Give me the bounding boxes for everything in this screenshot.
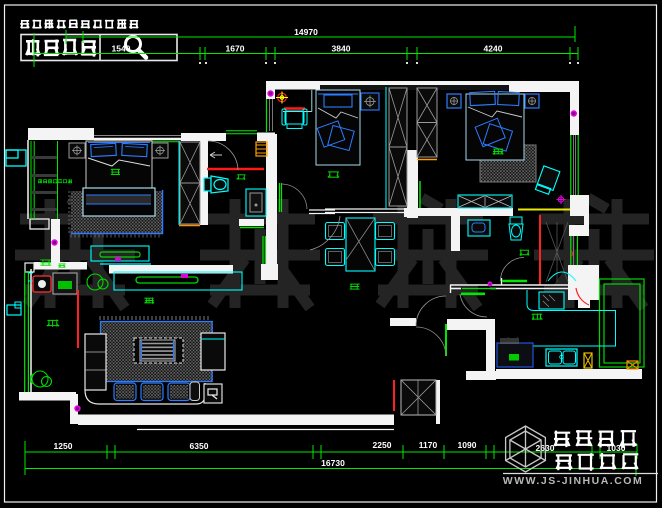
svg-text:3840: 3840 — [332, 44, 351, 54]
svg-text:14970: 14970 — [294, 27, 318, 37]
svg-text:1670: 1670 — [226, 44, 245, 54]
svg-text:16730: 16730 — [321, 458, 345, 468]
svg-text:4240: 4240 — [484, 44, 503, 54]
svg-text:1170: 1170 — [419, 440, 438, 450]
svg-text:1540: 1540 — [112, 44, 131, 54]
svg-text:1090: 1090 — [458, 440, 477, 450]
svg-text:1250: 1250 — [54, 441, 73, 451]
svg-text:2250: 2250 — [373, 440, 392, 450]
svg-text:6350: 6350 — [190, 441, 209, 451]
svg-text:WWW.JS-JINHUA.COM: WWW.JS-JINHUA.COM — [503, 475, 643, 487]
